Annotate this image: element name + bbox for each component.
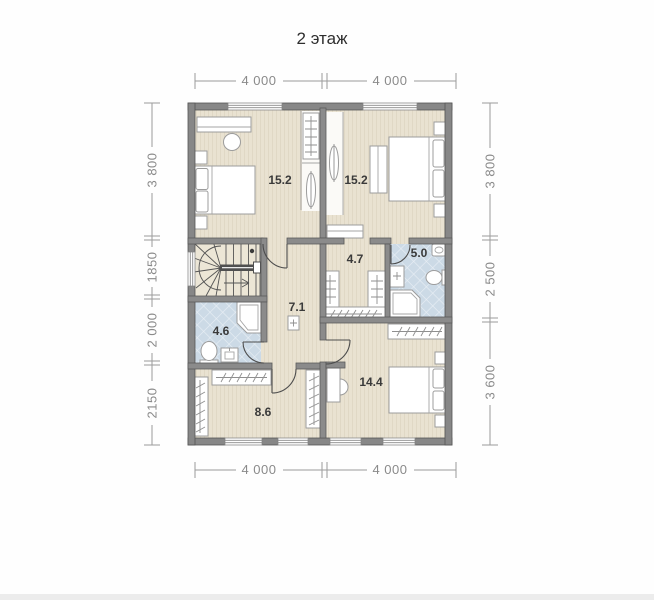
- pillow: [433, 140, 444, 167]
- window: [363, 103, 417, 110]
- label-wardrobe: 4.7: [347, 252, 364, 266]
- toilet-icon: [426, 271, 442, 285]
- pillow: [196, 169, 208, 190]
- dim-bottom-2: 4 000: [372, 462, 407, 477]
- dimension-top: 4 000 4 000: [195, 72, 456, 89]
- dimension-bottom: 4 000 4 000: [195, 461, 456, 478]
- pillow: [196, 191, 208, 212]
- wall-between-bedrooms: [320, 108, 326, 238]
- dim-top-1: 4 000: [241, 73, 276, 88]
- window: [228, 103, 282, 110]
- floor-plan-svg: 4 000 4 000 4 000 4 000 3 800 1850 2 000…: [0, 0, 654, 600]
- dim-left-2: 1850: [145, 252, 160, 283]
- window-bottom-edge: [0, 594, 654, 600]
- sink-icon: [432, 244, 446, 256]
- label-dressing: 8.6: [255, 405, 272, 419]
- nightstand: [434, 122, 446, 135]
- window: [225, 438, 262, 445]
- pillow: [433, 170, 444, 197]
- dim-bottom-1: 4 000: [241, 462, 276, 477]
- furniture-hall: [288, 316, 299, 330]
- nightstand: [434, 204, 446, 217]
- toilet-icon: [201, 342, 217, 361]
- label-bedroom3: 14.4: [359, 375, 383, 389]
- dim-top-2: 4 000: [372, 73, 407, 88]
- floor-plan-page: 4 000 4 000 4 000 4 000 3 800 1850 2 000…: [0, 0, 654, 600]
- newel-post: [250, 249, 254, 253]
- page-title: 2 этаж: [297, 29, 349, 48]
- dim-right-2: 2 500: [483, 261, 498, 296]
- window: [188, 252, 195, 286]
- nightstand: [194, 216, 207, 229]
- dimension-left: 3 800 1850 2 000 2150: [143, 103, 161, 445]
- window: [383, 438, 415, 445]
- low-wardrobe: [327, 225, 363, 238]
- nightstand: [435, 415, 446, 427]
- window: [330, 438, 361, 445]
- desk: [327, 368, 340, 402]
- label-bathroom: 4.6: [213, 324, 230, 338]
- dresser: [370, 146, 387, 193]
- pillow: [433, 369, 444, 388]
- label-hall: 7.1: [289, 300, 306, 314]
- label-bedroom2: 15.2: [344, 173, 368, 187]
- stool-icon: [224, 134, 241, 151]
- dimension-right: 3 800 2 500 3 600: [481, 103, 499, 445]
- nightstand: [194, 151, 207, 164]
- dim-left-1: 3 800: [145, 152, 160, 187]
- dim-right-3: 3 600: [483, 364, 498, 399]
- dresser: [197, 117, 251, 132]
- nightstand: [435, 352, 446, 364]
- shower-icon: [390, 290, 420, 317]
- dim-left-3: 2 000: [145, 312, 160, 347]
- pillow: [433, 391, 444, 410]
- dim-left-4: 2150: [145, 388, 160, 419]
- label-wc: 5.0: [411, 246, 428, 260]
- dim-right-1: 3 800: [483, 153, 498, 188]
- label-bedroom1: 15.2: [268, 173, 292, 187]
- window: [278, 438, 308, 445]
